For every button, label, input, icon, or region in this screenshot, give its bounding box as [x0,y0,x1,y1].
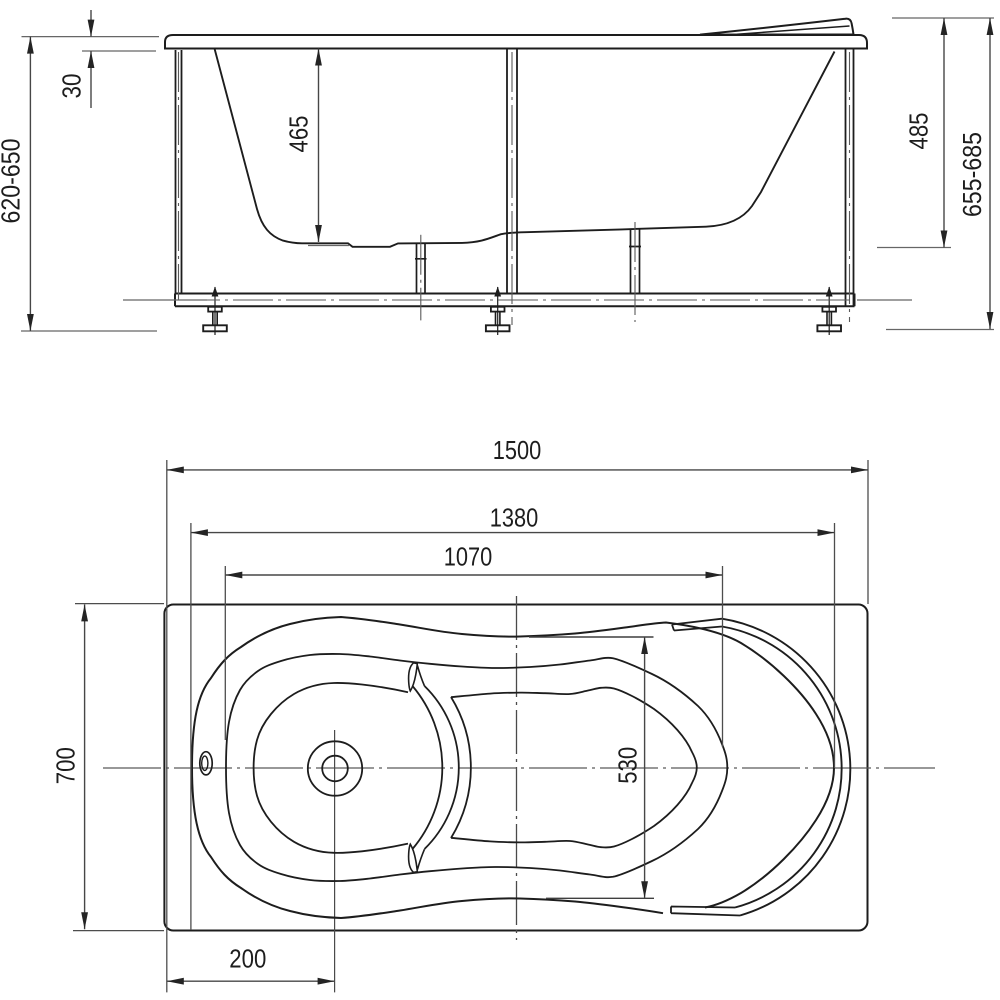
svg-text:1380: 1380 [490,505,539,533]
svg-text:1070: 1070 [444,544,493,572]
svg-text:1500: 1500 [493,437,542,465]
svg-text:200: 200 [229,946,266,974]
svg-text:465: 465 [286,116,314,153]
svg-text:620-650: 620-650 [0,139,26,224]
svg-text:530: 530 [615,747,643,784]
svg-text:30: 30 [59,74,87,99]
svg-text:655-685: 655-685 [959,132,987,217]
svg-text:700: 700 [53,747,81,784]
svg-text:485: 485 [906,113,934,150]
